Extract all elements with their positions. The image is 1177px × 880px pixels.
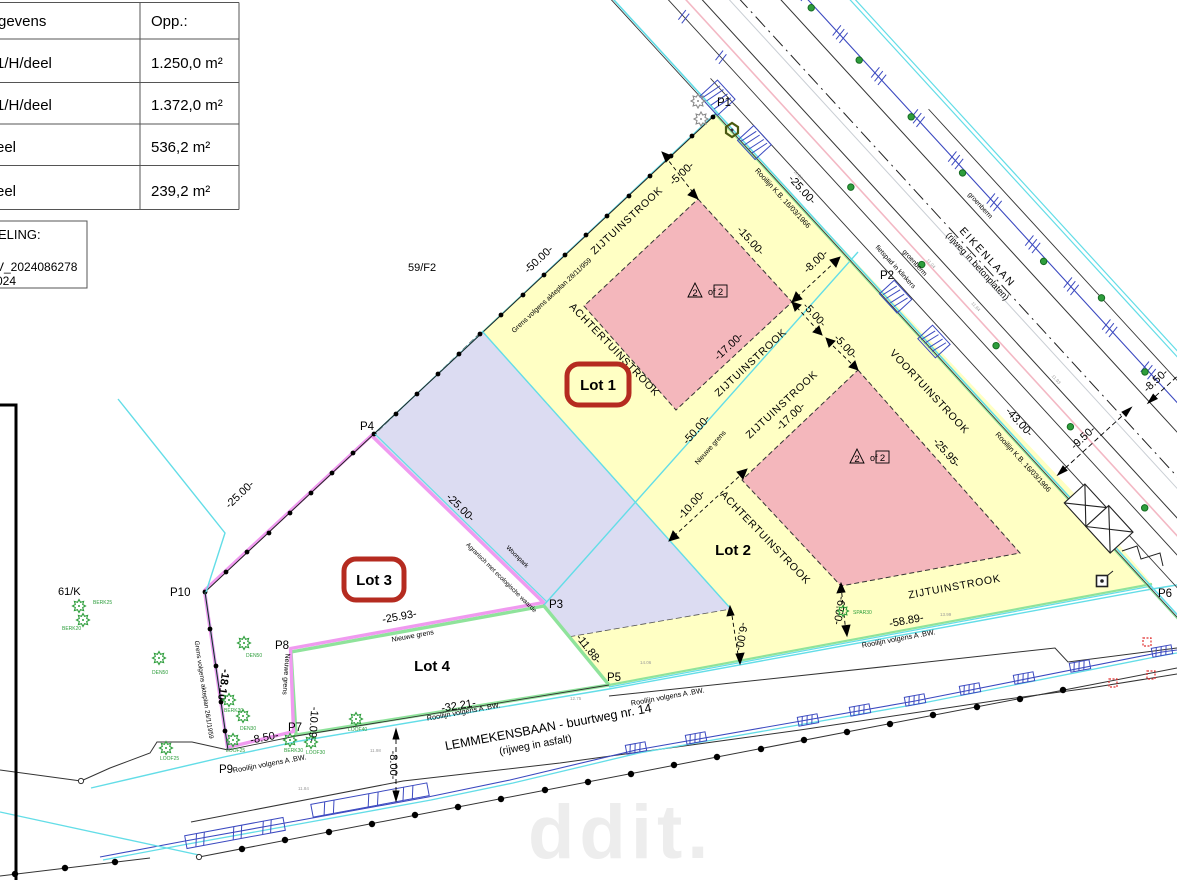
svg-text:-10.09-: -10.09- — [306, 706, 320, 742]
svg-text:61/K: 61/K — [58, 586, 81, 598]
svg-text:2: 2 — [880, 453, 885, 464]
svg-text:BERK30: BERK30 — [284, 748, 303, 754]
svg-text:LOOF25: LOOF25 — [160, 756, 179, 762]
svg-text:gevens: gevens — [0, 13, 46, 30]
svg-text:536,2 m²: 536,2 m² — [151, 139, 210, 156]
svg-text:024: 024 — [0, 274, 16, 288]
svg-text:Lot 3: Lot 3 — [356, 572, 392, 589]
svg-text:239,2 m²: 239,2 m² — [151, 183, 210, 200]
svg-text:P9: P9 — [219, 764, 233, 776]
svg-text:P5: P5 — [607, 672, 621, 684]
svg-text:V_2024086278: V_2024086278 — [0, 260, 78, 274]
svg-text:Opp.:: Opp.: — [151, 13, 188, 30]
svg-text:Lot 4: Lot 4 — [414, 658, 450, 675]
svg-text:ddit.: ddit. — [528, 790, 713, 875]
svg-text:P2: P2 — [880, 270, 894, 282]
svg-text:BERK30: BERK30 — [224, 708, 243, 714]
svg-text:59/F2: 59/F2 — [408, 262, 436, 274]
svg-text:12.75: 12.75 — [570, 696, 582, 701]
svg-text:BERK25: BERK25 — [93, 600, 112, 606]
svg-text:2: 2 — [692, 288, 697, 299]
svg-text:1.250,0 m²: 1.250,0 m² — [151, 55, 223, 72]
svg-text:Lot 2: Lot 2 — [715, 542, 751, 559]
svg-text:1.372,0 m²: 1.372,0 m² — [151, 97, 223, 114]
svg-text:-8.00-: -8.00- — [387, 751, 399, 780]
svg-text:2: 2 — [854, 454, 859, 465]
svg-text:DEN30: DEN30 — [240, 726, 256, 732]
svg-text:LOOF25: LOOF25 — [226, 748, 245, 754]
svg-text:LOOF40: LOOF40 — [348, 727, 367, 733]
svg-text:DEN50: DEN50 — [246, 653, 262, 659]
svg-text:P8: P8 — [275, 640, 289, 652]
svg-text:eel: eel — [0, 139, 16, 156]
svg-text:14.06: 14.06 — [640, 660, 652, 665]
svg-text:eel: eel — [0, 183, 16, 200]
svg-text:of: of — [708, 287, 716, 297]
svg-text:LOOF30: LOOF30 — [306, 750, 325, 756]
svg-text:SPAR30: SPAR30 — [853, 610, 872, 616]
svg-text:11.98: 11.98 — [370, 748, 381, 753]
svg-text:2: 2 — [718, 287, 723, 298]
svg-text:P3: P3 — [549, 599, 563, 611]
svg-text:P1: P1 — [717, 97, 731, 109]
svg-text:11.84: 11.84 — [298, 786, 309, 791]
svg-text:P4: P4 — [360, 421, 375, 433]
svg-text:BERK20: BERK20 — [62, 626, 81, 632]
svg-text:DEN50: DEN50 — [152, 670, 168, 676]
svg-text:1/H/deel: 1/H/deel — [0, 97, 52, 114]
svg-text:P10: P10 — [170, 587, 190, 599]
svg-text:of: of — [870, 453, 878, 463]
svg-text:1/H/deel: 1/H/deel — [0, 55, 52, 72]
svg-text:13.99: 13.99 — [940, 612, 952, 617]
svg-text:Lot 1: Lot 1 — [580, 377, 616, 394]
svg-text:ELING:: ELING: — [0, 227, 41, 242]
svg-text:P6: P6 — [1158, 588, 1172, 600]
svg-text:P7: P7 — [288, 722, 302, 734]
